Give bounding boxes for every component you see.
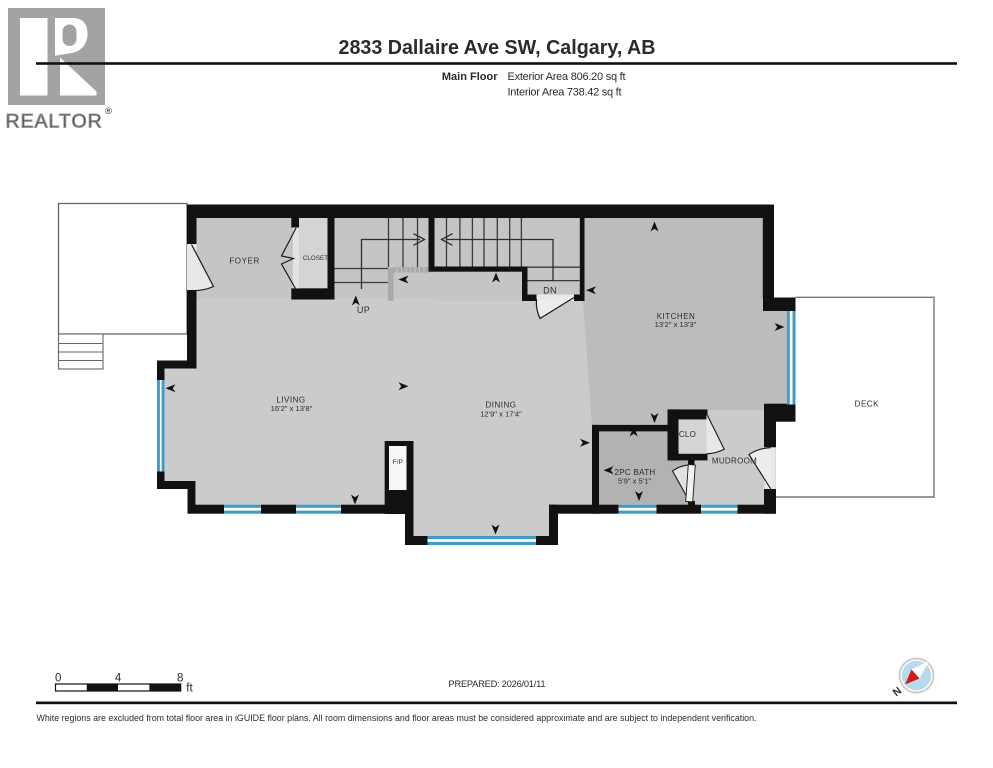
svg-text:DECK: DECK [855,400,879,409]
svg-text:F/P: F/P [393,459,403,466]
svg-text:REALTOR: REALTOR [6,111,103,133]
svg-text:8: 8 [177,673,183,685]
svg-text:UP: UP [357,305,370,315]
svg-text:White regions are excluded fro: White regions are excluded from total fl… [37,713,757,723]
svg-text:FOYER: FOYER [229,256,260,265]
svg-text:PREPARED: 2026/01/11: PREPARED: 2026/01/11 [449,679,546,689]
svg-text:5'9" x 5'1": 5'9" x 5'1" [618,477,652,486]
svg-text:2833 Dallaire Ave SW, Calgary,: 2833 Dallaire Ave SW, Calgary, AB [339,37,656,59]
svg-text:CLOSET: CLOSET [303,255,328,262]
svg-text:CLO: CLO [679,430,696,439]
svg-text:Main Floor: Main Floor [442,71,498,83]
svg-text:Exterior Area 806.20 sq ft: Exterior Area 806.20 sq ft [508,71,626,83]
svg-text:0: 0 [55,673,61,685]
svg-text:®: ® [105,106,112,117]
svg-text:4: 4 [115,673,122,685]
svg-text:Interior Area 738.42 sq ft: Interior Area 738.42 sq ft [508,87,622,99]
svg-text:DN: DN [543,286,557,296]
svg-text:ft: ft [186,683,193,695]
svg-text:16'2" x 13'8": 16'2" x 13'8" [271,404,313,413]
svg-text:MUDROOM: MUDROOM [712,457,757,466]
svg-text:12'9" x 17'4": 12'9" x 17'4" [480,409,522,418]
svg-text:13'2" x 13'3": 13'2" x 13'3" [655,320,697,329]
